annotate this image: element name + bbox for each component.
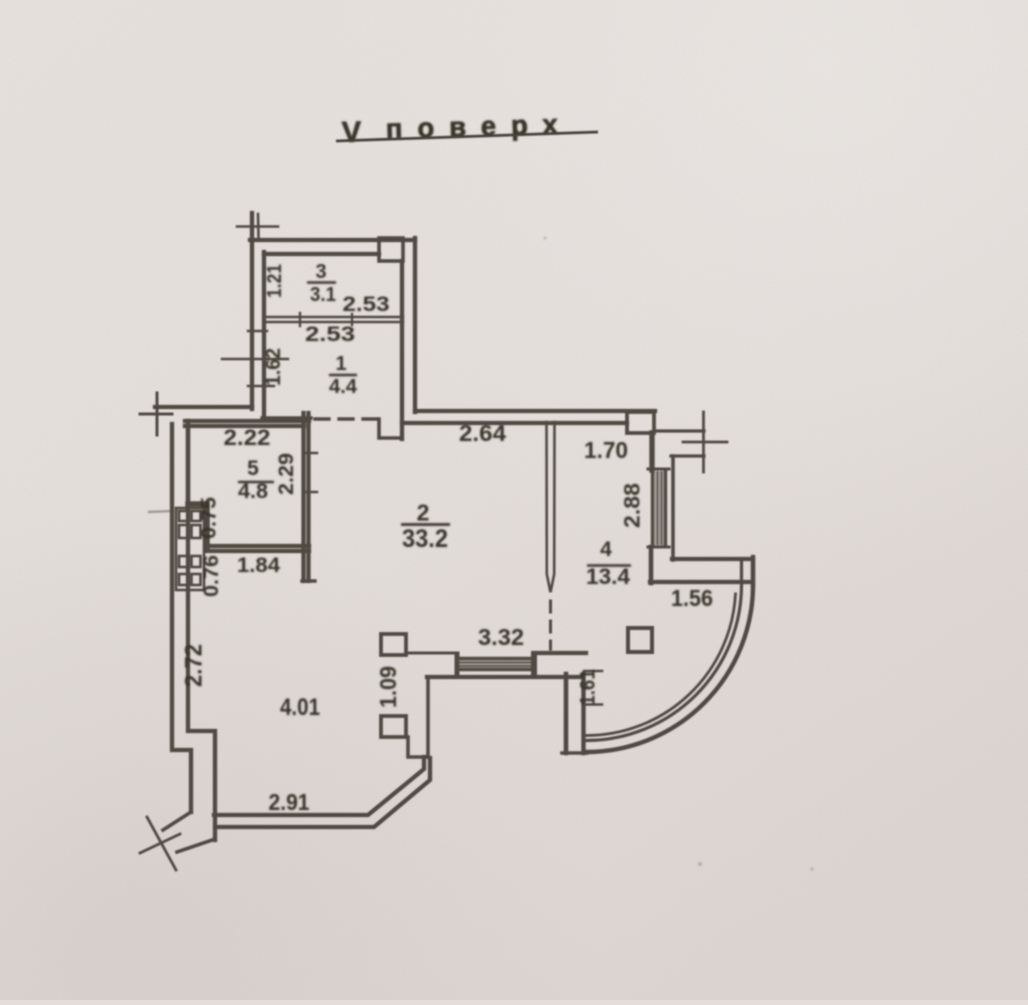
svg-text:1.62: 1.62 — [262, 348, 285, 386]
svg-text:1: 1 — [335, 353, 346, 375]
svg-text:2.29: 2.29 — [275, 453, 298, 495]
svg-text:3: 3 — [315, 261, 326, 283]
svg-text:2: 2 — [417, 500, 430, 526]
svg-text:1.21: 1.21 — [264, 264, 286, 298]
svg-text:3.1: 3.1 — [310, 284, 336, 306]
svg-text:1.84: 1.84 — [237, 554, 280, 577]
svg-text:1.09: 1.09 — [375, 666, 401, 708]
svg-text:2.53: 2.53 — [343, 293, 390, 316]
svg-text:0.75: 0.75 — [197, 497, 221, 539]
svg-text:4: 4 — [600, 538, 612, 561]
svg-text:2.22: 2.22 — [224, 425, 271, 450]
svg-text:13.4: 13.4 — [586, 564, 631, 589]
svg-text:1.70: 1.70 — [584, 437, 628, 463]
svg-text:2.88: 2.88 — [620, 483, 645, 528]
svg-text:2.91: 2.91 — [269, 789, 310, 815]
svg-text:V: V — [341, 116, 362, 149]
svg-text:2.53: 2.53 — [305, 323, 355, 346]
svg-text:4.01: 4.01 — [280, 694, 320, 721]
svg-text:2.64: 2.64 — [459, 420, 506, 446]
svg-text:4.8: 4.8 — [238, 480, 268, 503]
svg-text:4.4: 4.4 — [329, 376, 358, 398]
svg-text:0.76: 0.76 — [199, 555, 223, 597]
svg-text:33.2: 33.2 — [402, 525, 448, 553]
svg-text:1.56: 1.56 — [671, 585, 713, 611]
svg-text:2.72: 2.72 — [181, 644, 208, 687]
svg-text:3.32: 3.32 — [478, 624, 524, 650]
svg-text:1.61: 1.61 — [577, 669, 600, 705]
svg-text:5: 5 — [247, 457, 259, 480]
